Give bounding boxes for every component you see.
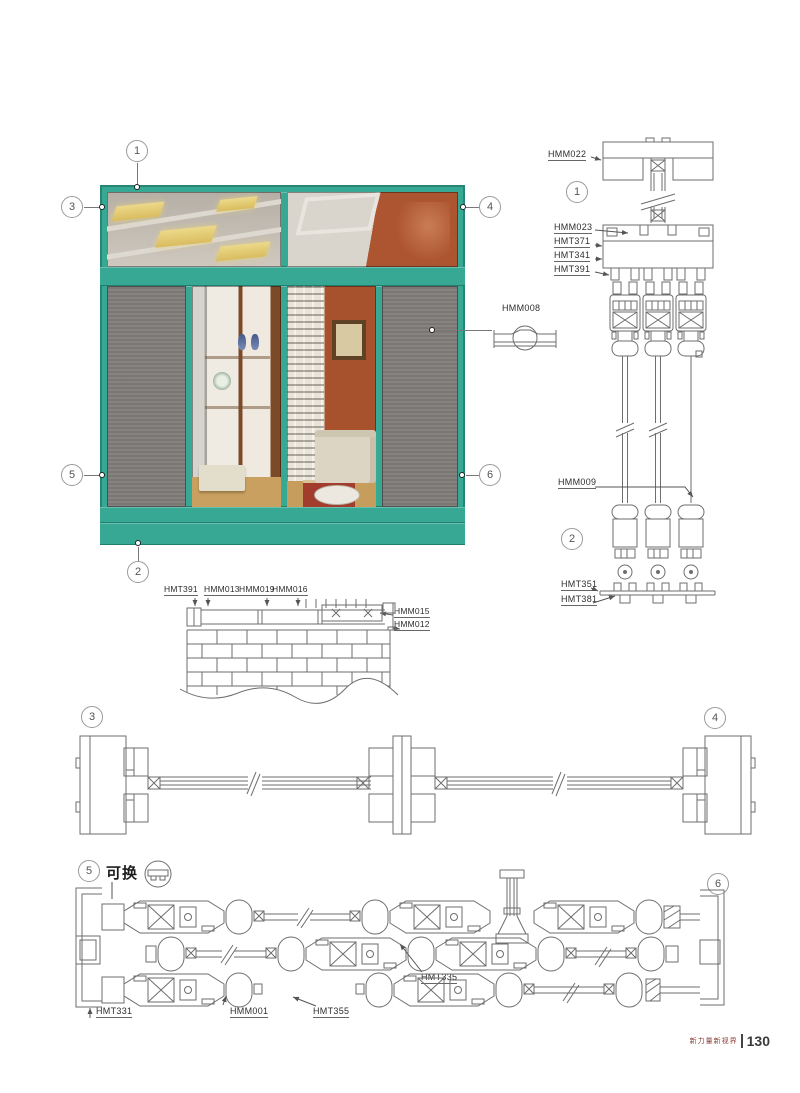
stile bbox=[281, 286, 287, 507]
ceiling-coffer bbox=[295, 192, 380, 235]
stile bbox=[186, 286, 192, 507]
skylight-glow bbox=[155, 225, 217, 248]
catalog-page: 1 3 4 5 6 2 1 2 3 4 5 6 HMM008 HMM022 HM… bbox=[0, 0, 800, 1093]
part-label-hmm008: HMM008 bbox=[502, 303, 540, 314]
ottoman bbox=[199, 465, 245, 491]
horizontal-section-56-drawing bbox=[60, 860, 780, 1025]
wall-highlight bbox=[396, 202, 450, 262]
section-marker-3: 3 bbox=[61, 196, 83, 218]
bottom-frame bbox=[100, 523, 465, 545]
mullion bbox=[281, 192, 287, 267]
reference-dot bbox=[460, 204, 466, 210]
reference-dot bbox=[429, 327, 435, 333]
transom-pane-left bbox=[107, 192, 281, 267]
shelf-line bbox=[205, 406, 270, 409]
footer-slogan: 新力量新视界 bbox=[690, 1036, 738, 1046]
shelf-line bbox=[205, 356, 270, 359]
vase bbox=[251, 334, 259, 350]
skylight-glow bbox=[215, 242, 270, 262]
horizontal-section-34-drawing bbox=[60, 700, 760, 850]
page-number: 130 bbox=[741, 1034, 770, 1048]
reference-dot bbox=[134, 184, 140, 190]
section-marker-6: 6 bbox=[479, 464, 501, 486]
section-marker-4: 4 bbox=[479, 196, 501, 218]
reference-dot bbox=[99, 472, 105, 478]
reference-dot bbox=[459, 472, 465, 478]
leader-line bbox=[137, 163, 138, 186]
transom-rail bbox=[100, 267, 465, 286]
coffee-table bbox=[314, 485, 360, 505]
transom-pane-right bbox=[287, 192, 458, 267]
kick-rail bbox=[100, 507, 465, 523]
leader-line bbox=[466, 475, 479, 476]
plate bbox=[213, 372, 231, 390]
window-elevation-rendering bbox=[100, 185, 465, 545]
screen-panel-left bbox=[107, 286, 186, 507]
page-footer: 新力量新视界 130 bbox=[640, 1034, 770, 1048]
section-marker-2: 2 bbox=[127, 561, 149, 583]
stile bbox=[376, 286, 382, 507]
leader-line bbox=[466, 207, 479, 208]
section-marker-1: 1 bbox=[126, 140, 148, 162]
reference-dot bbox=[135, 540, 141, 546]
vase bbox=[238, 334, 246, 350]
framed-art bbox=[332, 320, 366, 360]
leader-line bbox=[84, 475, 100, 476]
sofa bbox=[315, 430, 376, 483]
sill-detail-drawing bbox=[150, 583, 450, 711]
section-marker-5: 5 bbox=[61, 464, 83, 486]
reference-dot bbox=[99, 204, 105, 210]
glass-panel-sofa bbox=[287, 286, 376, 507]
leader-line bbox=[84, 207, 100, 208]
leader-line bbox=[138, 547, 139, 561]
leader-line bbox=[436, 330, 492, 331]
screen-panel-right bbox=[382, 286, 458, 507]
glass-panel-cabinet bbox=[192, 286, 281, 507]
skylight-glow bbox=[216, 196, 258, 212]
vertical-section-drawing bbox=[545, 135, 775, 620]
